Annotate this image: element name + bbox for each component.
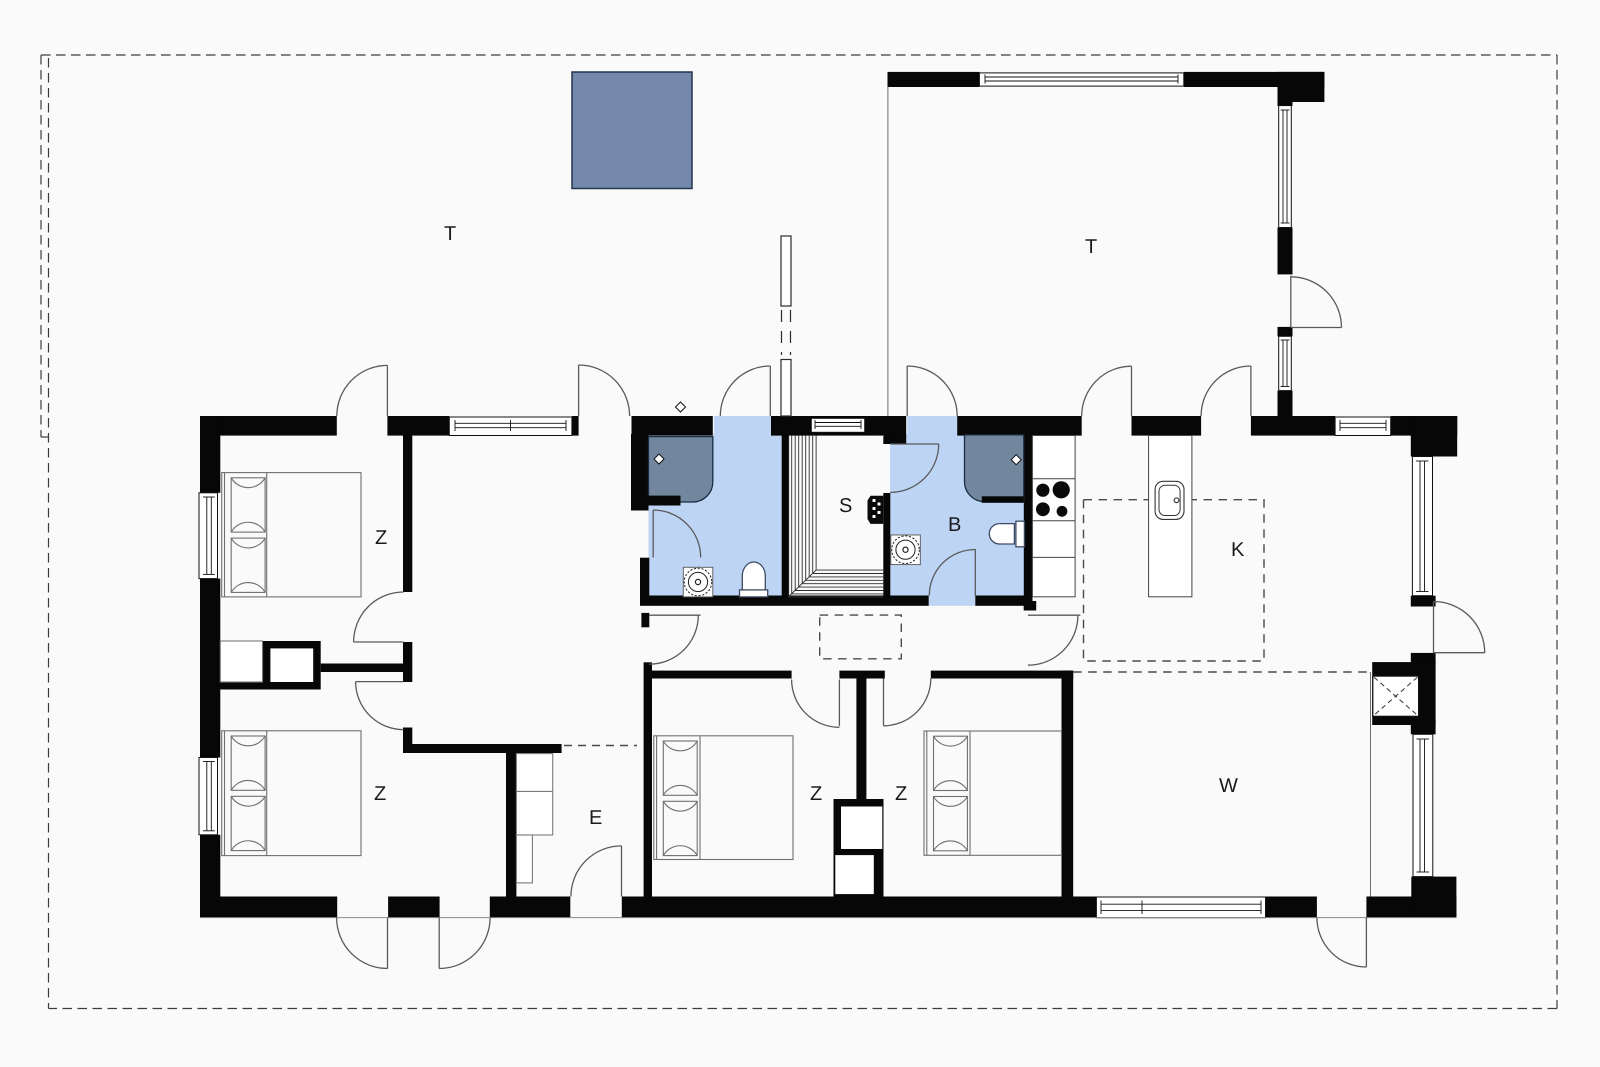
svg-text:K: K xyxy=(1231,539,1245,561)
svg-text:E: E xyxy=(589,807,602,829)
svg-text:Z: Z xyxy=(374,783,386,805)
svg-text:Z: Z xyxy=(810,783,822,805)
svg-text:W: W xyxy=(1219,775,1238,797)
svg-text:B: B xyxy=(948,514,961,536)
svg-text:T: T xyxy=(444,223,456,245)
svg-text:T: T xyxy=(1085,236,1097,258)
svg-text:Z: Z xyxy=(375,527,387,549)
svg-text:S: S xyxy=(839,495,852,517)
svg-text:Z: Z xyxy=(895,783,907,805)
